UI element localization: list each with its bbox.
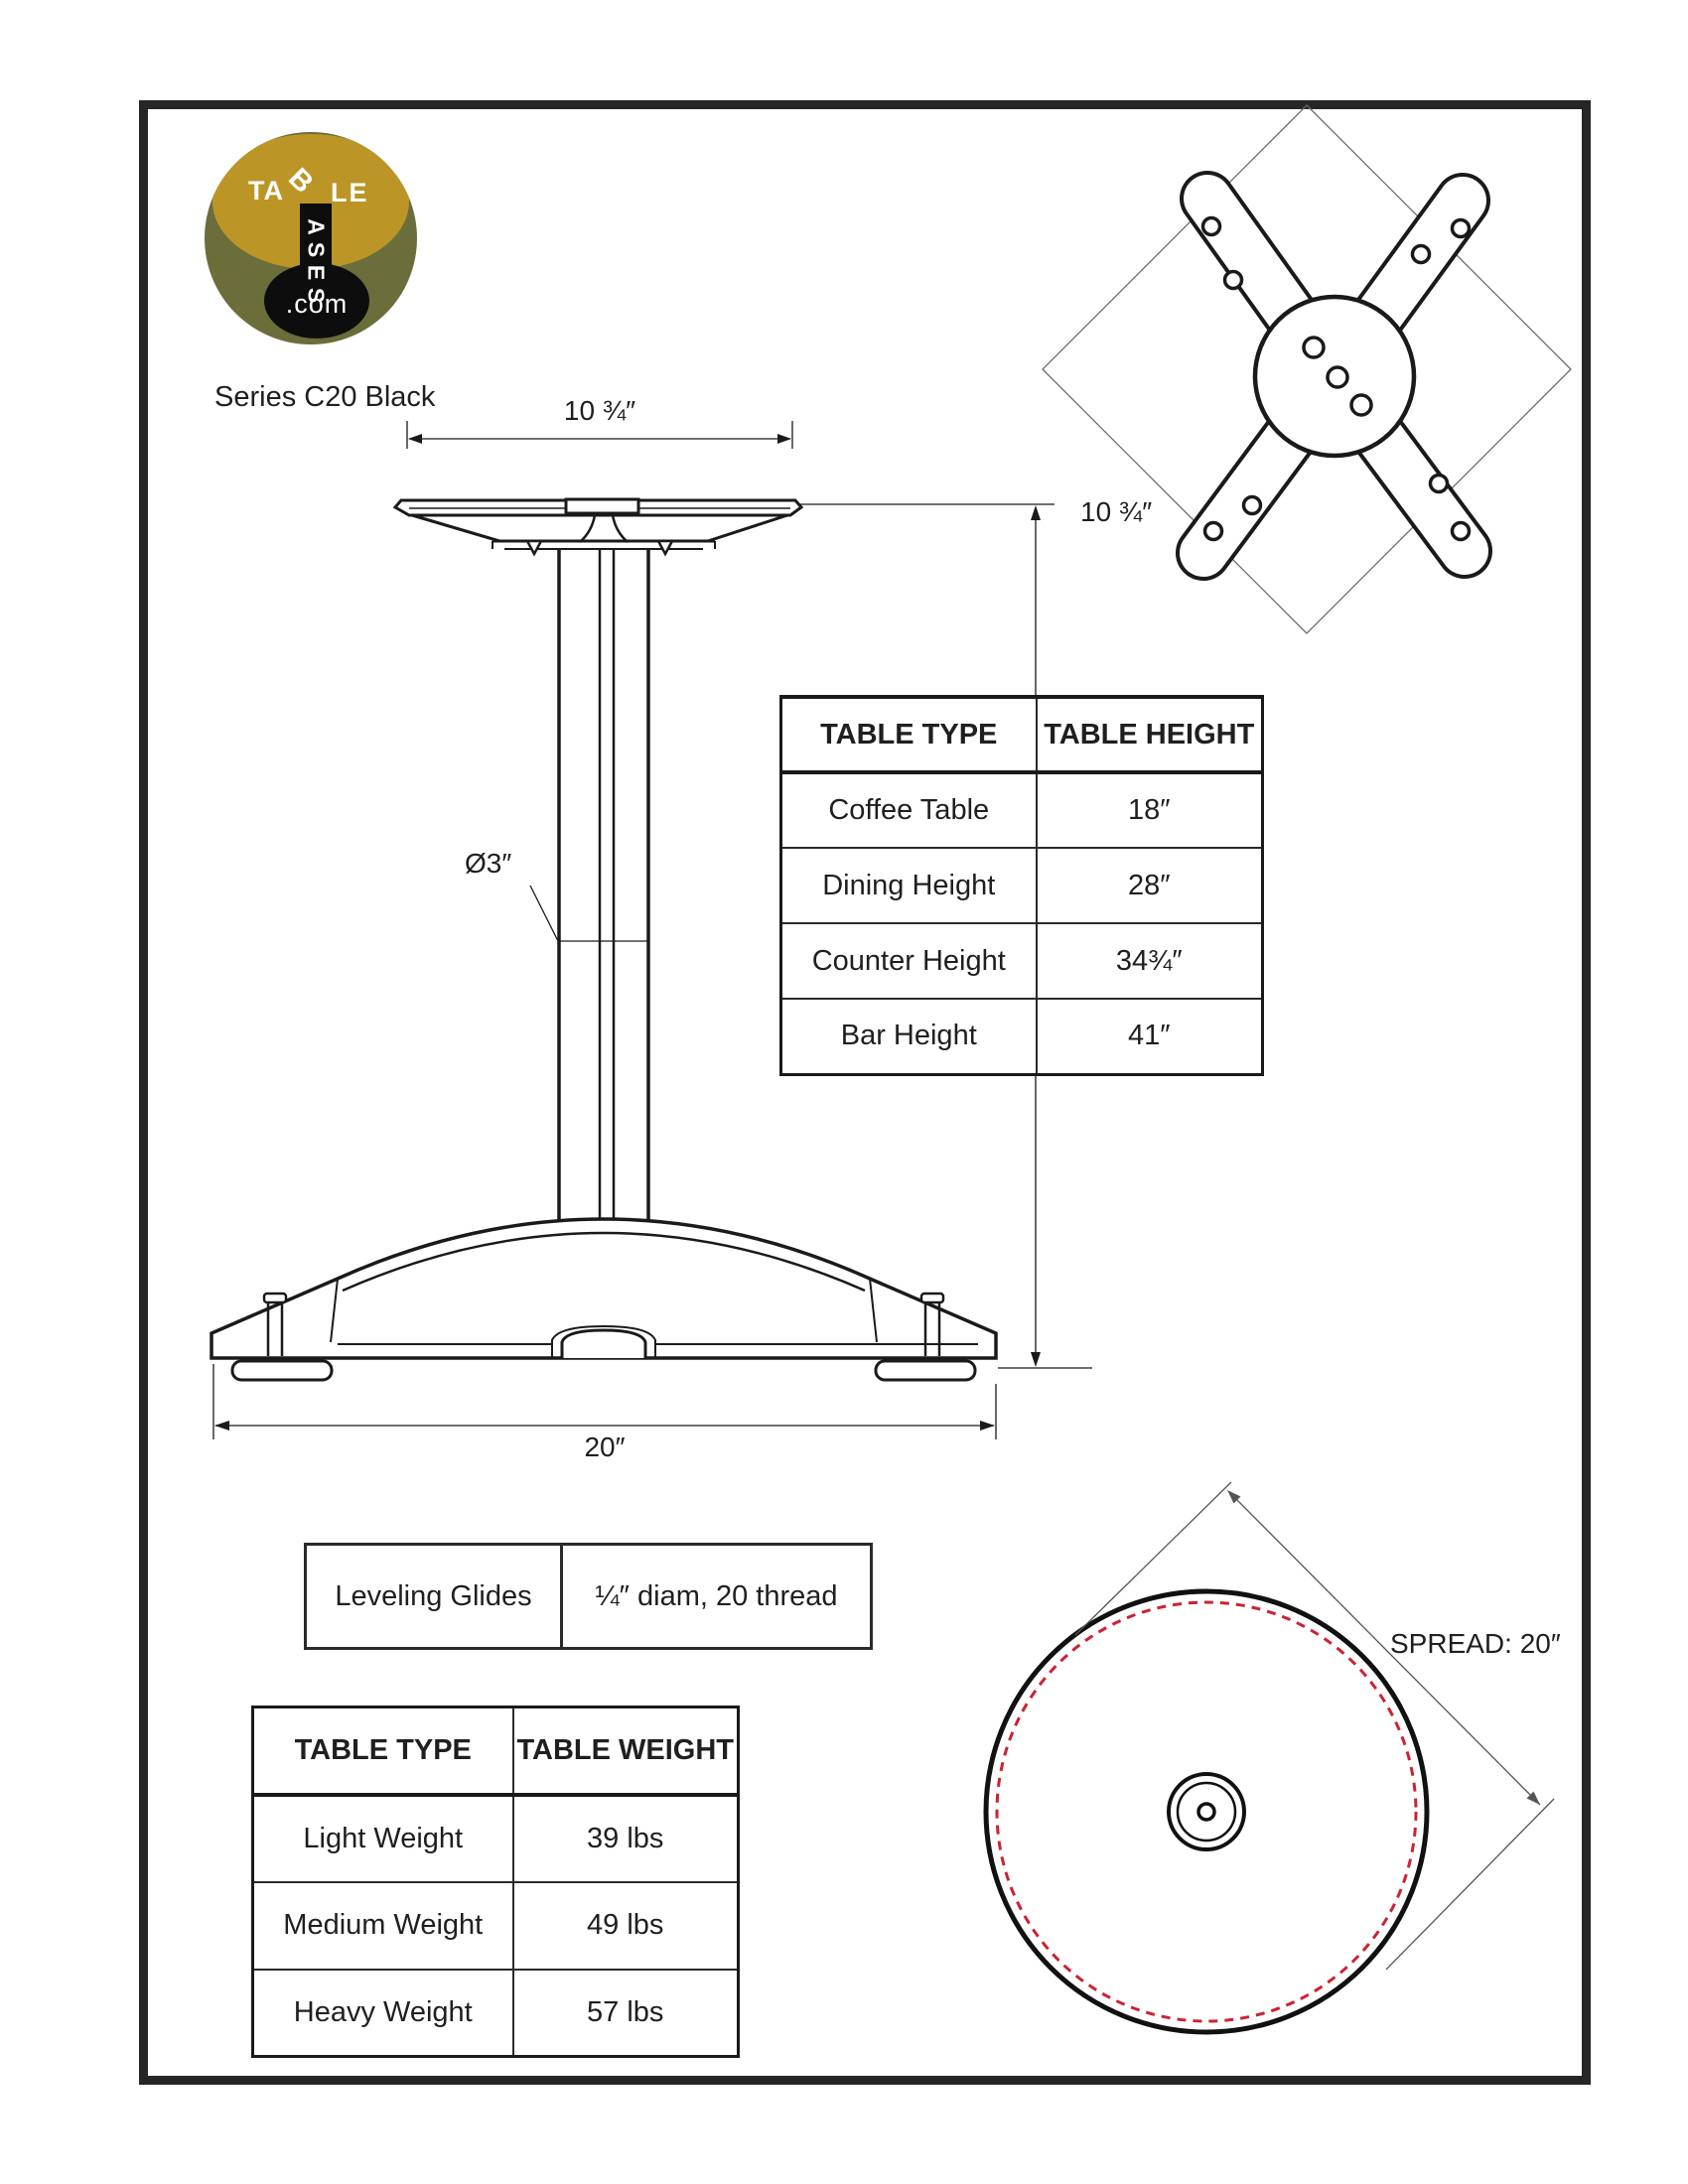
table-cell: 49 lbs [513, 1882, 739, 1970]
logo-word-start: TA [248, 176, 284, 206]
table-row: Heavy Weight 57 lbs [253, 1970, 739, 2057]
top-width-label: 10 ¾″ [535, 395, 664, 427]
table-cell: Bar Height [781, 999, 1037, 1074]
column-header: TABLE HEIGHT [1037, 697, 1263, 772]
table-cell: Medium Weight [253, 1882, 513, 1970]
table-cell: 28″ [1037, 848, 1263, 923]
column-diameter-label: Ø3″ [465, 848, 511, 880]
column-header: TABLE TYPE [253, 1707, 513, 1795]
column-header: TABLE TYPE [781, 697, 1037, 772]
spec-sheet-page: TA B LE A S E S .com Series C20 Black 10… [0, 0, 1688, 2184]
table-row: Coffee Table 18″ [781, 772, 1263, 848]
table-cell: Counter Height [781, 923, 1037, 999]
logo-word-end: LE [331, 178, 369, 208]
table-row: TABLE TYPE TABLE WEIGHT [253, 1707, 739, 1795]
leveling-glides-table: Leveling Glides ¼″ diam, 20 thread [304, 1543, 873, 1650]
table-cell: Dining Height [781, 848, 1037, 923]
table-row: Light Weight 39 lbs [253, 1795, 739, 1882]
table-cell: Coffee Table [781, 772, 1037, 848]
table-cell: 39 lbs [513, 1795, 739, 1882]
logo-domain: .com [264, 289, 369, 320]
logo-vertical-letter: A [303, 215, 330, 239]
table-cell: 34¾″ [1037, 923, 1263, 999]
table-cell: 18″ [1037, 772, 1263, 848]
logo-vertical-letter: E [303, 261, 330, 285]
table-weight-table: TABLE TYPE TABLE WEIGHT Light Weight 39 … [251, 1706, 740, 2058]
tablebases-logo: TA B LE A S E S .com [205, 132, 417, 344]
base-width-label: 20″ [555, 1432, 654, 1463]
table-row: Bar Height 41″ [781, 999, 1263, 1074]
table-cell: 41″ [1037, 999, 1263, 1074]
table-cell: Heavy Weight [253, 1970, 513, 2057]
spread-label: SPREAD: 20″ [1390, 1628, 1561, 1660]
table-cell: Leveling Glides [306, 1545, 562, 1649]
table-row: Dining Height 28″ [781, 848, 1263, 923]
table-row: TABLE TYPE TABLE HEIGHT [781, 697, 1263, 772]
table-row: Medium Weight 49 lbs [253, 1882, 739, 1970]
table-row: Counter Height 34¾″ [781, 923, 1263, 999]
column-header: TABLE WEIGHT [513, 1707, 739, 1795]
table-cell: Light Weight [253, 1795, 513, 1882]
table-cell: 57 lbs [513, 1970, 739, 2057]
table-height-table: TABLE TYPE TABLE HEIGHT Coffee Table 18″… [779, 695, 1264, 1076]
table-cell: ¼″ diam, 20 thread [562, 1545, 872, 1649]
series-title: Series C20 Black [214, 381, 435, 414]
table-row: Leveling Glides ¼″ diam, 20 thread [306, 1545, 872, 1649]
top-view-width-label: 10 ¾″ [1080, 496, 1152, 528]
logo-vertical-letter: S [303, 238, 330, 262]
